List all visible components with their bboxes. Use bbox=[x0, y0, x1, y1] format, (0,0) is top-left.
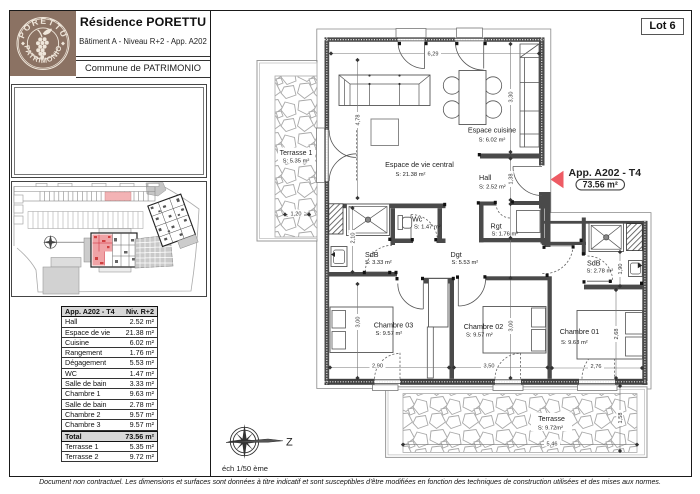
svg-text:SdB: SdB bbox=[587, 259, 601, 268]
svg-text:S: 1.76 m²: S: 1.76 m² bbox=[492, 232, 519, 238]
svg-text:S: 5.53 m²: S: 5.53 m² bbox=[452, 260, 479, 266]
svg-text:Espace cuisine: Espace cuisine bbox=[468, 126, 516, 135]
svg-text:S: 9.57 m²: S: 9.57 m² bbox=[376, 331, 403, 337]
svg-text:Z: Z bbox=[286, 437, 293, 449]
svg-text:2,68: 2,68 bbox=[614, 329, 620, 340]
svg-text:Dgt: Dgt bbox=[451, 250, 462, 259]
svg-text:1,20: 1,20 bbox=[291, 211, 302, 217]
svg-text:S: 2.78 m²: S: 2.78 m² bbox=[587, 269, 614, 275]
svg-text:3,30: 3,30 bbox=[509, 92, 515, 103]
svg-text:Chambre 03: Chambre 03 bbox=[374, 321, 414, 330]
svg-text:SdB: SdB bbox=[365, 250, 379, 259]
svg-text:6,29: 6,29 bbox=[428, 52, 439, 58]
svg-text:Hall: Hall bbox=[479, 173, 492, 182]
svg-text:Chambre 01: Chambre 01 bbox=[560, 327, 600, 336]
svg-text:S: 5.35 m²: S: 5.35 m² bbox=[283, 159, 310, 165]
svg-text:3,50: 3,50 bbox=[484, 363, 495, 369]
svg-text:1,58: 1,58 bbox=[618, 413, 624, 424]
svg-text:2,90: 2,90 bbox=[372, 363, 383, 369]
svg-text:Wc: Wc bbox=[412, 215, 423, 224]
svg-text:4,78: 4,78 bbox=[356, 115, 362, 126]
svg-text:3,00: 3,00 bbox=[509, 321, 515, 332]
svg-text:2,10: 2,10 bbox=[351, 233, 357, 244]
svg-text:S: 2.52 m²: S: 2.52 m² bbox=[479, 185, 506, 191]
svg-text:S: 3.33 m²: S: 3.33 m² bbox=[365, 260, 392, 266]
svg-text:2,76: 2,76 bbox=[591, 364, 602, 370]
svg-text:Espace de vie central: Espace de vie central bbox=[385, 160, 454, 169]
svg-text:App. A202 - T4: App. A202 - T4 bbox=[569, 167, 642, 179]
svg-text:73.56 m²: 73.56 m² bbox=[583, 180, 618, 190]
svg-text:Chambre 02: Chambre 02 bbox=[464, 322, 504, 331]
svg-text:S: 9.72m²: S: 9.72m² bbox=[538, 426, 563, 432]
svg-text:S: 1.47 m²: S: 1.47 m² bbox=[414, 225, 441, 231]
svg-text:Terrasse: Terrasse bbox=[538, 416, 565, 423]
svg-text:3,00: 3,00 bbox=[356, 317, 362, 328]
svg-text:S: 6.02 m²: S: 6.02 m² bbox=[479, 138, 506, 144]
svg-text:S: 9.63 m²: S: 9.63 m² bbox=[561, 340, 588, 346]
svg-text:1,90: 1,90 bbox=[618, 264, 624, 275]
svg-text:1,38: 1,38 bbox=[509, 174, 515, 185]
svg-text:Rgt: Rgt bbox=[491, 222, 502, 231]
svg-text:Terrasse 1: Terrasse 1 bbox=[280, 150, 313, 157]
svg-text:S: 21.38 m²: S: 21.38 m² bbox=[396, 172, 426, 178]
svg-text:5,46: 5,46 bbox=[547, 441, 558, 447]
svg-text:S: 9.57 m²: S: 9.57 m² bbox=[466, 333, 493, 339]
